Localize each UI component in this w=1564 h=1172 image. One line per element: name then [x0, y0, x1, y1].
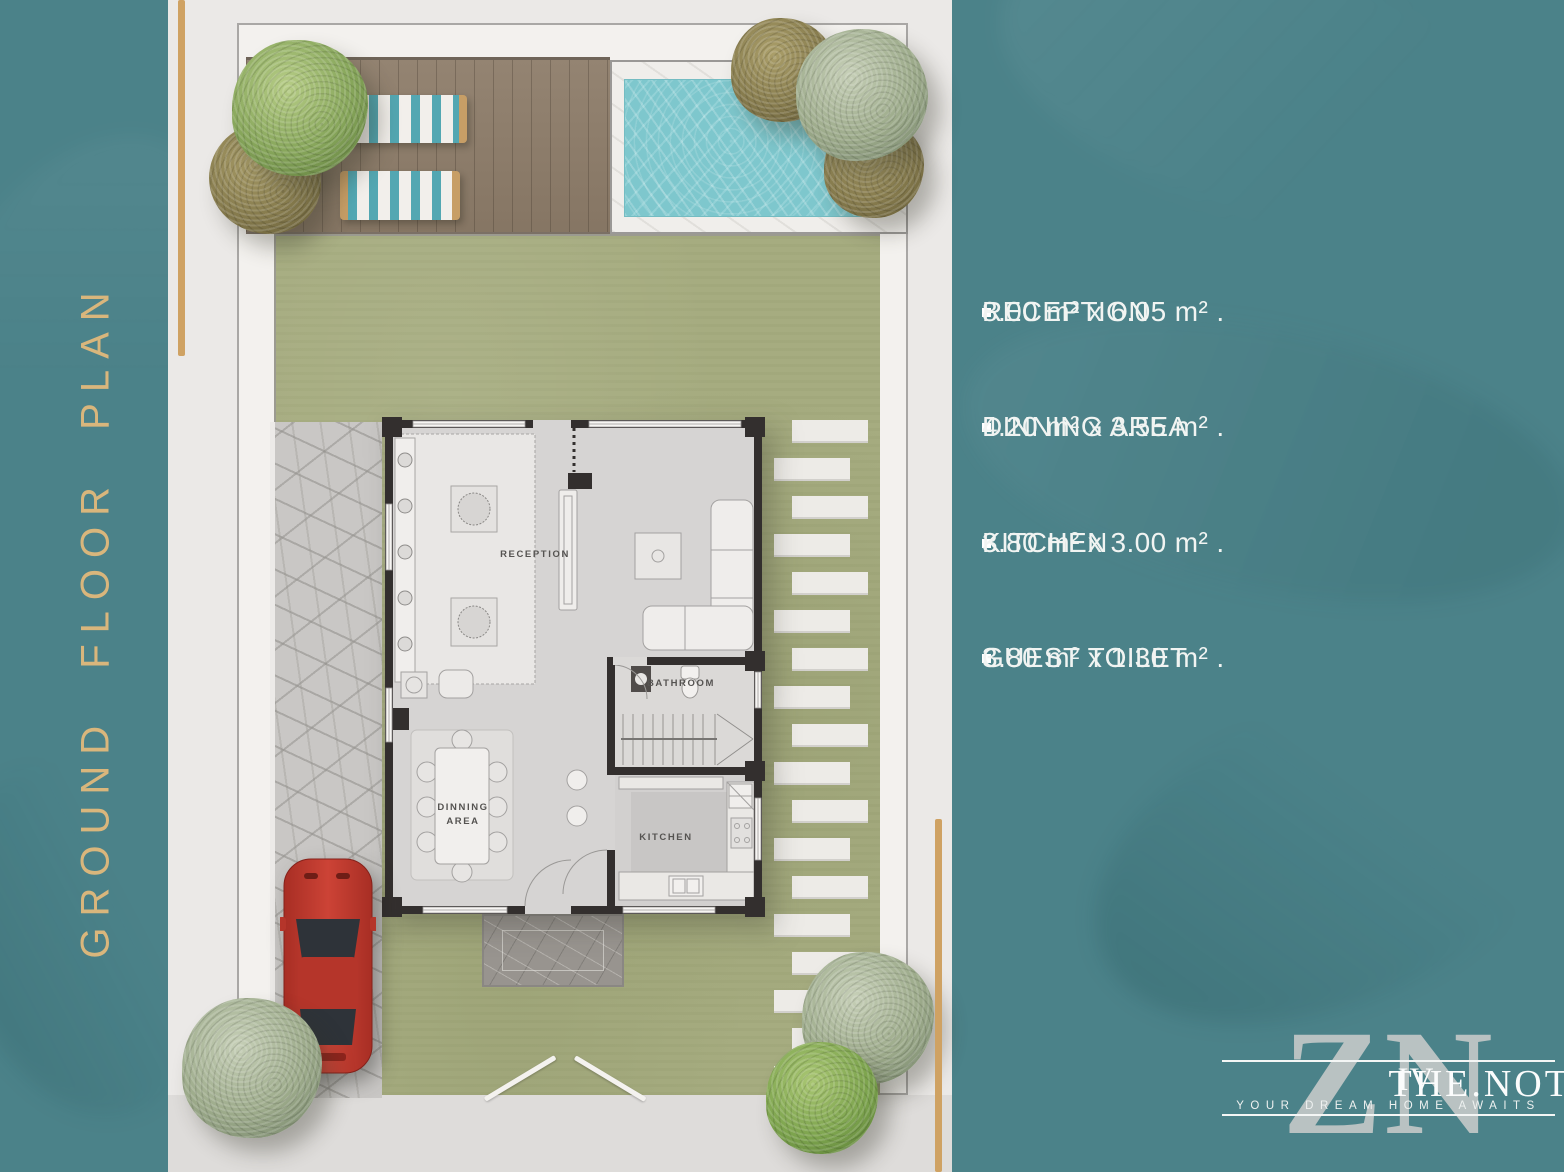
- entry-porch: [482, 914, 624, 987]
- logo-numeral: IV: [1398, 1062, 1435, 1099]
- spec-value: 4.20 m² x 3.55 m² .: [982, 411, 1225, 443]
- kitchen-label: KITCHEN: [639, 832, 692, 843]
- logo-tagline: YOUR DREAM HOME AWAITS: [1222, 1100, 1555, 1112]
- gold-accent-bar: [178, 0, 185, 356]
- brochure-page: GROUND FLOOR PLAN: [0, 0, 1564, 1172]
- page-title: GROUND FLOOR PLAN: [74, 281, 119, 958]
- tree: [232, 40, 368, 176]
- plan-sheet: RECEPTION BATHROOM DINNING AREA KITCHEN: [168, 0, 952, 1172]
- spec-value: 8.00 m² x 6.05 m² .: [982, 296, 1225, 328]
- palm-texture: [964, 0, 1564, 300]
- dinning-label-line2: AREA: [446, 816, 479, 827]
- gold-accent-bar: [935, 819, 942, 1172]
- spec-row-kitchen: KITCHEN 3.80 m² x 3.00 m² .: [982, 525, 1540, 561]
- house-floorplan: RECEPTION BATHROOM DINNING AREA KITCHEN: [385, 420, 762, 914]
- spec-row-guest-toilet: GUEST TOILET 3.80 m² x 1.30 m² .: [982, 640, 1540, 676]
- plot-plan: RECEPTION BATHROOM DINNING AREA KITCHEN: [237, 23, 908, 1095]
- spec-row-dinning-area: DINNING AREA 4.20 m² x 3.55 m² .: [982, 409, 1540, 445]
- bathroom-label: BATHROOM: [647, 678, 715, 689]
- logo-rule: [1222, 1114, 1555, 1116]
- reception-label: RECEPTION: [500, 549, 570, 560]
- tree: [766, 1042, 878, 1154]
- spec-row-reception: RECEPTION 8.00 m² x 6.05 m² .: [982, 294, 1540, 330]
- spec-value: 3.80 m² x 3.00 m² .: [982, 527, 1225, 559]
- dinning-label-line1: DINNING: [437, 802, 488, 813]
- lounge-chair: [340, 171, 460, 220]
- tree: [182, 998, 322, 1138]
- brand-logo: ZN THE.NOTCHIV YOUR DREAM HOME AWAITS: [1222, 998, 1555, 1168]
- spec-value: 3.80 m² x 1.30 m² .: [982, 642, 1225, 674]
